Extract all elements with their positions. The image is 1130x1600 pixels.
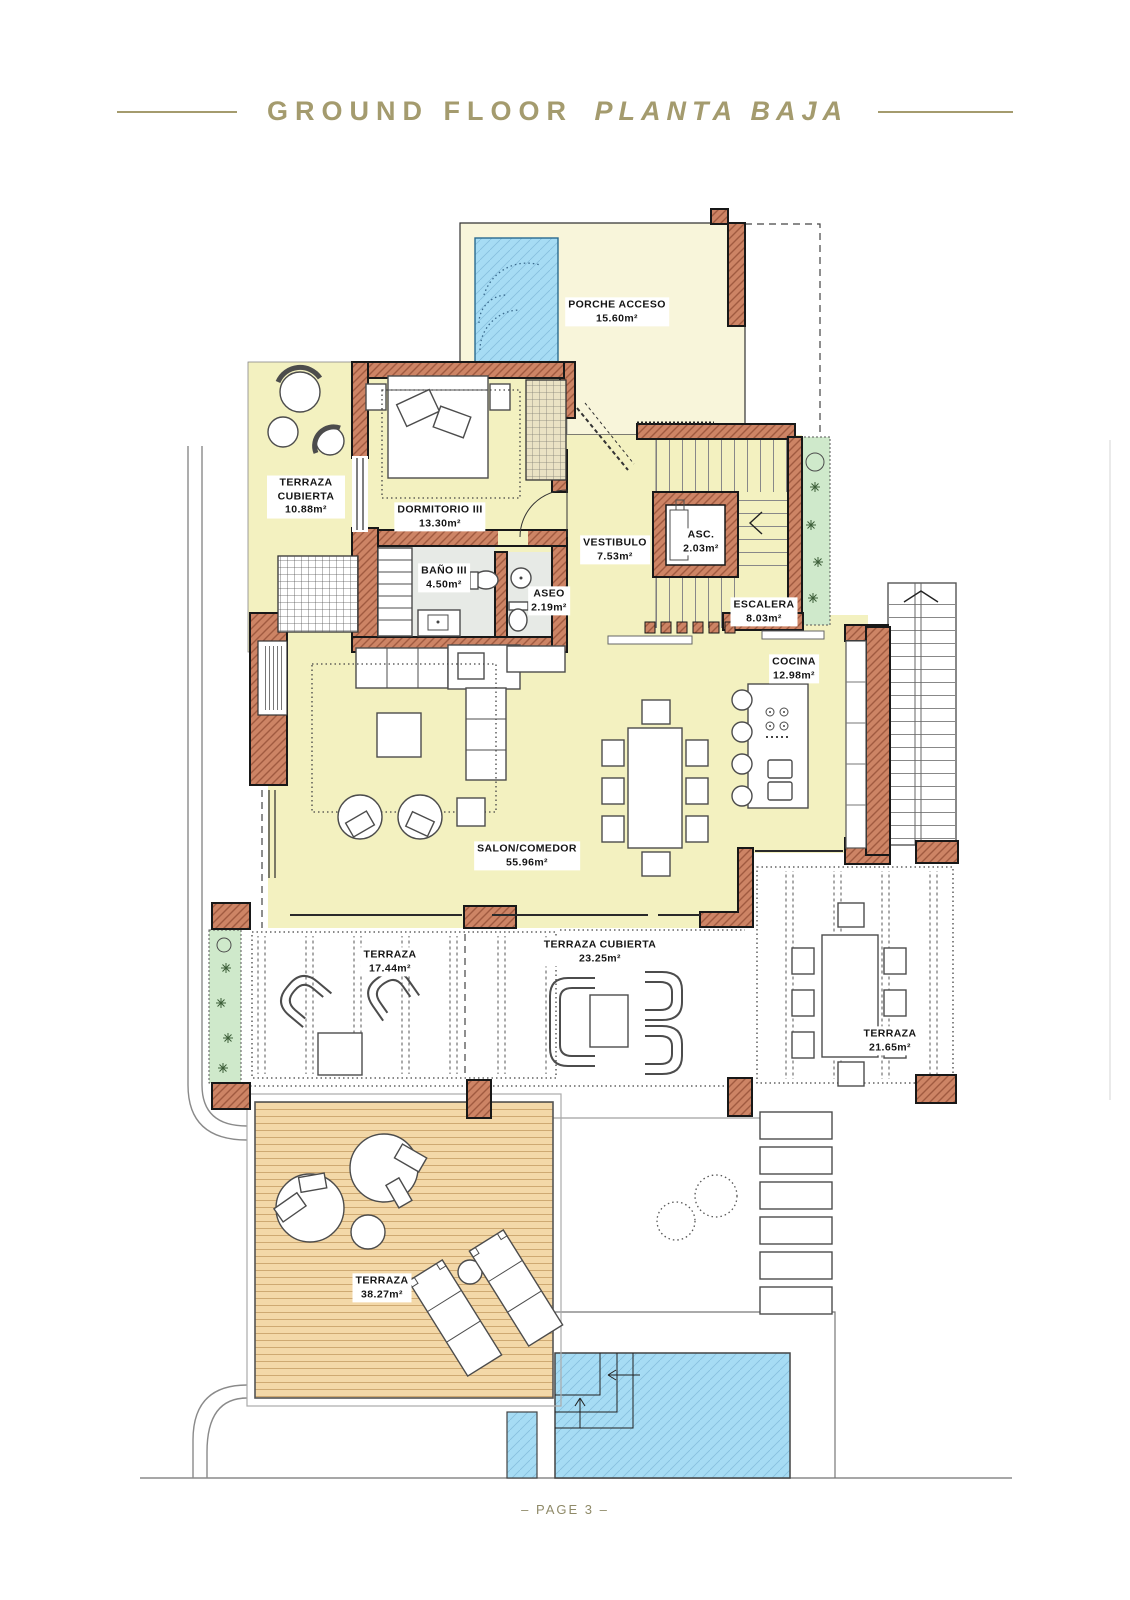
title-rule-left [117,111,237,113]
floor-plan-page: GROUND FLOOR PLANTA BAJA PORCHE ACCESO 1… [0,0,1130,1600]
room-label-ascensor: ASC. 2.03m² [682,528,720,555]
room-label-terraza-cubierta-23: TERRAZA CUBIERTA 23.25m² [541,937,660,966]
title-spanish: PLANTA BAJA [595,96,849,126]
room-label-aseo: ASEO 2.19m² [528,586,570,615]
page-title-bar: GROUND FLOOR PLANTA BAJA [0,96,1130,127]
page-title: GROUND FLOOR PLANTA BAJA [267,96,848,127]
room-label-bano-3: BAÑO III 4.50m² [418,563,470,592]
room-label-terraza-17: TERRAZA 17.44m² [361,947,420,976]
room-label-terraza-cubierta-10: TERRAZA CUBIERTA 10.88m² [267,476,345,519]
room-label-terraza-38: TERRAZA 38.27m² [353,1273,412,1302]
title-rule-right [878,111,1013,113]
floor-plan-drawing [0,0,1130,1600]
page-number: – PAGE 3 – [0,1502,1130,1517]
title-english: GROUND FLOOR [267,96,573,126]
room-label-cocina: COCINA 12.98m² [769,654,819,683]
room-label-salon-comedor: SALON/COMEDOR 55.96m² [474,841,580,870]
garden-steps [760,1112,832,1314]
room-label-vestibulo: VESTIBULO 7.53m² [580,535,650,564]
room-label-dormitorio-3: DORMITORIO III 13.30m² [394,502,485,531]
room-label-porche-acceso: PORCHE ACCESO 15.60m² [565,297,669,326]
water-feature-pool [475,238,558,363]
room-label-terraza-21: TERRAZA 21.65m² [861,1026,920,1055]
room-label-escalera: ESCALERA 8.03m² [731,597,798,626]
property-dashed-line [745,224,820,437]
tree-symbols [657,1175,737,1240]
exterior-staircase [888,583,956,845]
